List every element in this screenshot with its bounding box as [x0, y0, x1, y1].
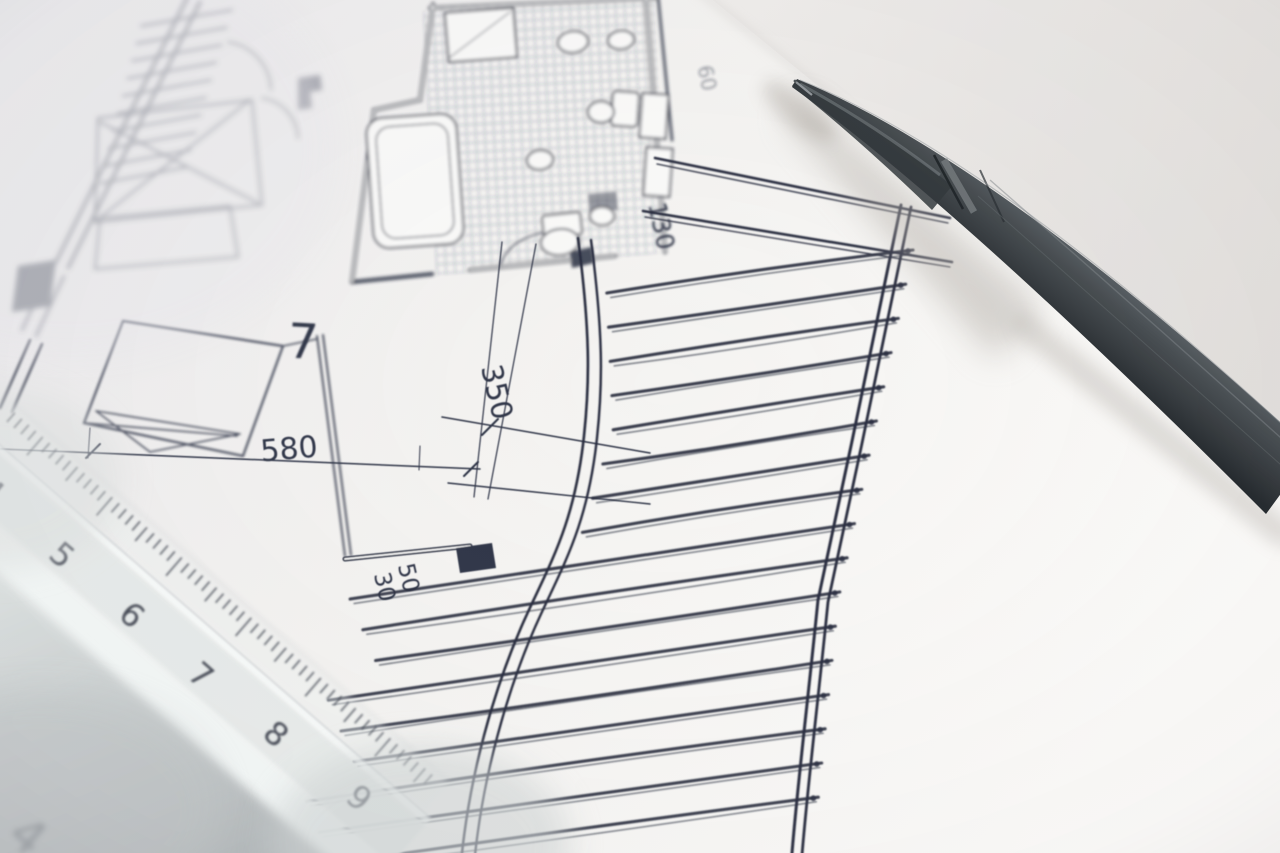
photo-svg: 580 350 30 50 130 60 7 — [0, 0, 1280, 853]
photo-scene: 580 350 30 50 130 60 7 — [0, 0, 1280, 853]
vignette — [0, 0, 1280, 853]
